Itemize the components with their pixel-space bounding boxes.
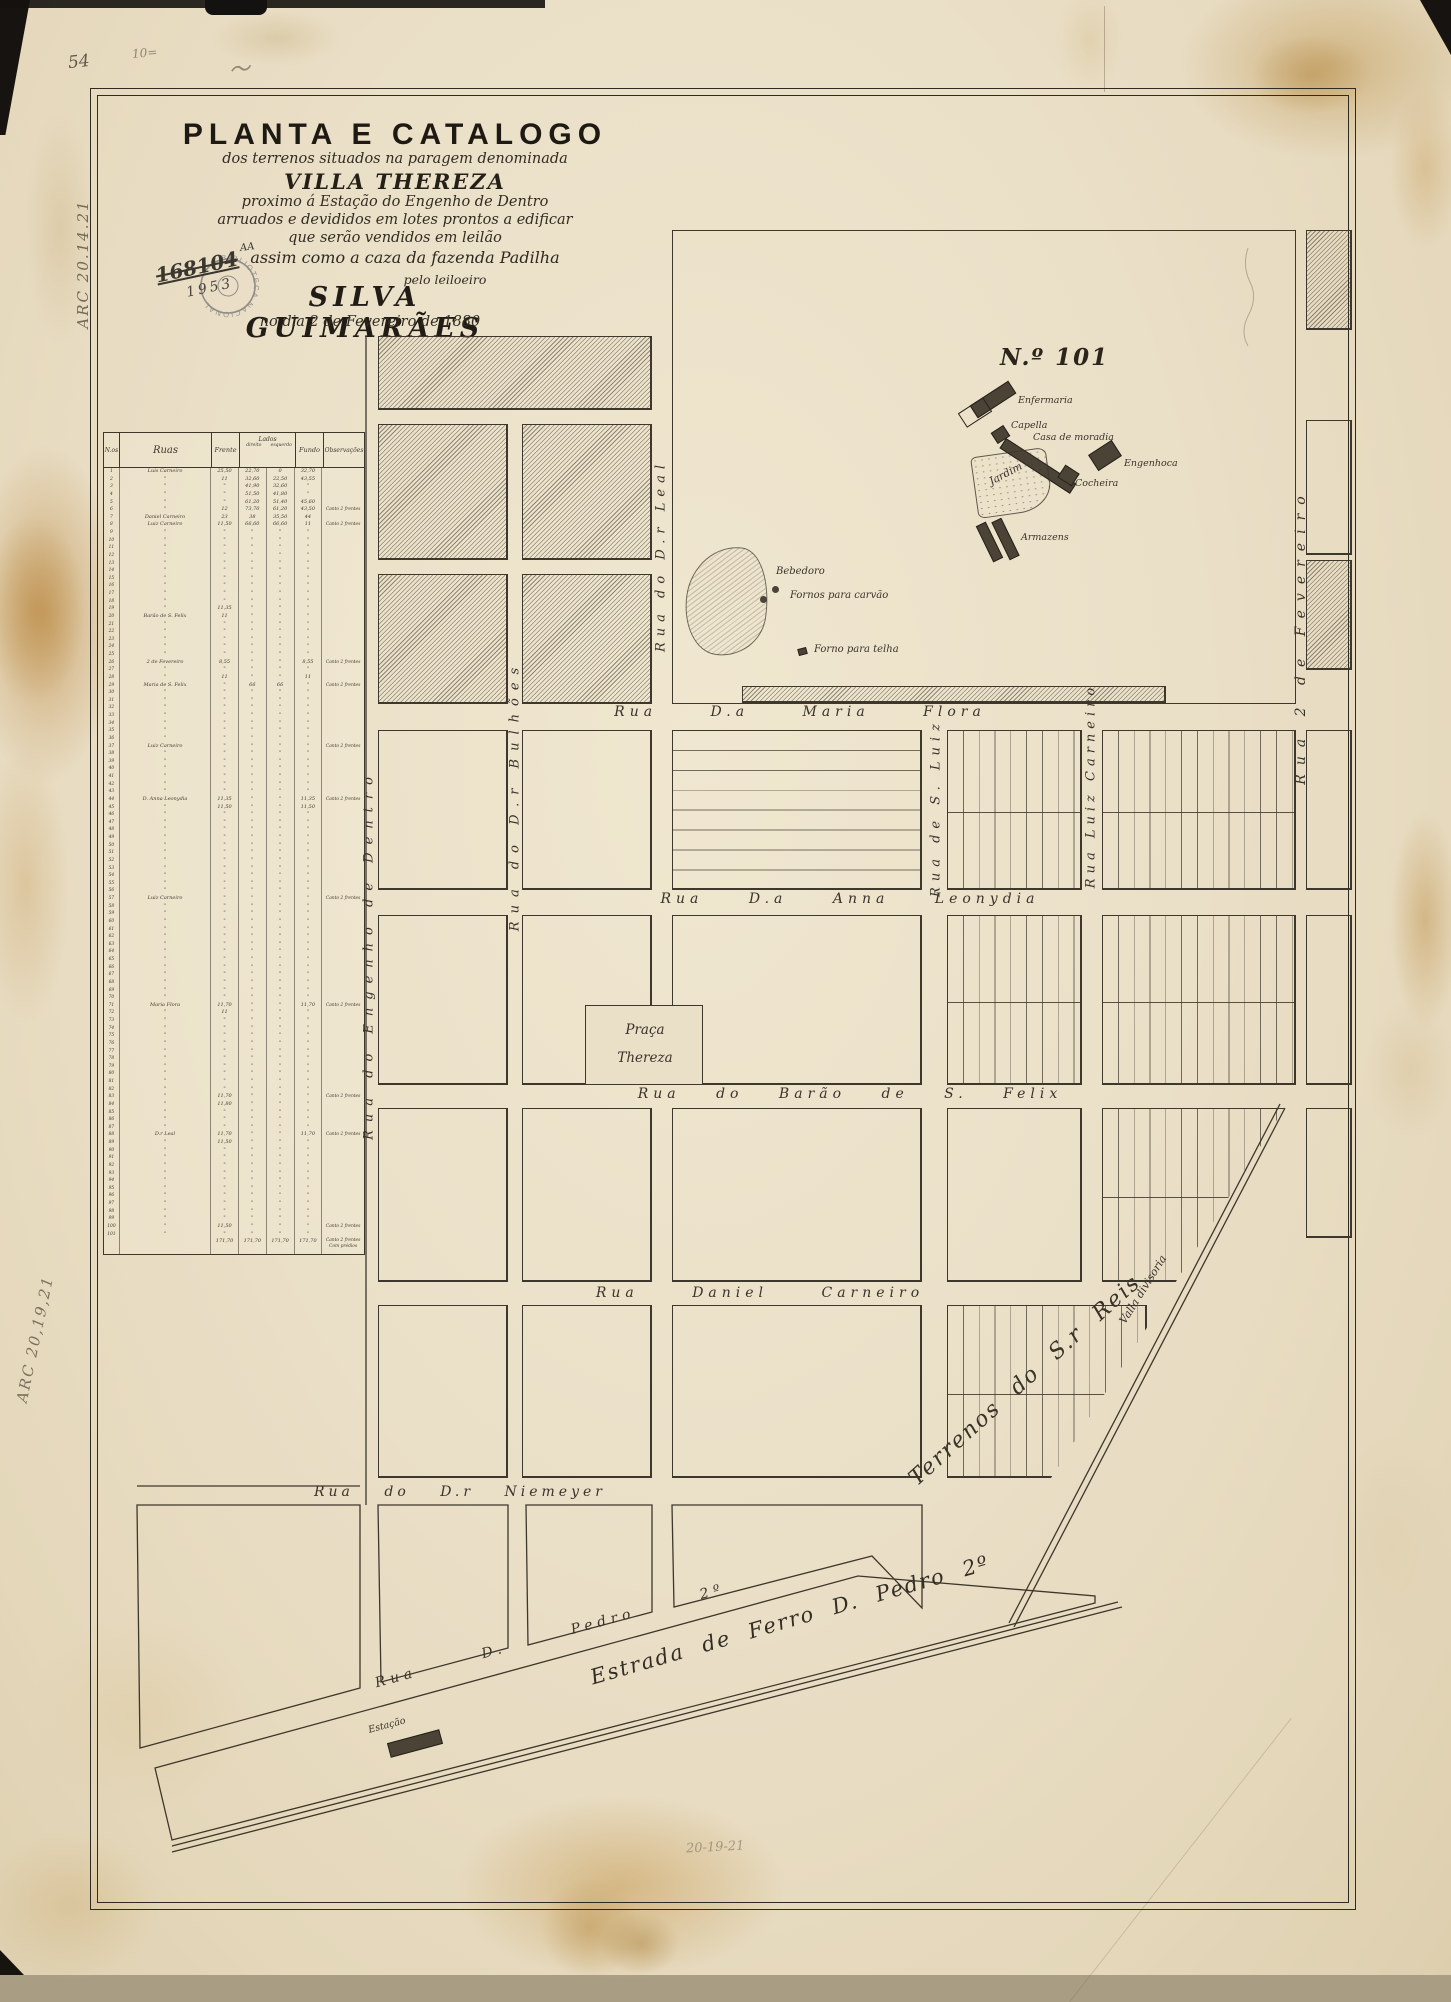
table-row: 15""""" [104, 575, 364, 583]
table-row: 78""""" [104, 1055, 364, 1063]
table-row: 76""""" [104, 1040, 364, 1048]
table-row: 37Luiz Carneiro""""Canto 2 frentes [104, 743, 364, 751]
table-row: 70""""" [104, 994, 364, 1002]
table-row: 31""""" [104, 697, 364, 705]
table-row: 91""""" [104, 1154, 364, 1162]
map-block-hatched [378, 574, 508, 704]
table-row: 16""""" [104, 582, 364, 590]
table-row: 45"11,50""11,50 [104, 804, 364, 812]
table-row: 97""""" [104, 1200, 364, 1208]
table-row: 51""""" [104, 849, 364, 857]
map-block [522, 730, 652, 890]
map-title: PLANTA E CATALOGO [165, 118, 625, 152]
stain [1055, 0, 1125, 95]
table-row: 95""""" [104, 1185, 364, 1193]
table-row: 96""""" [104, 1192, 364, 1200]
table-row: 100"11,50"""Canto 2 frentes [104, 1223, 364, 1231]
table-row: 55""""" [104, 880, 364, 888]
margin-block [1306, 420, 1352, 555]
praca-label-1: Praça [600, 1022, 690, 1038]
map-block-lots [947, 730, 1082, 890]
stain [0, 745, 70, 1025]
table-row: 69""""" [104, 987, 364, 995]
forno-carvao-dot [760, 596, 767, 603]
hatched-strip [742, 686, 1166, 703]
map-block [378, 730, 508, 890]
table-row: 50""""" [104, 842, 364, 850]
col-header-ruas: Ruas [120, 433, 212, 467]
table-row: 63""""" [104, 941, 364, 949]
cocheira-label: Cocheira [1075, 478, 1118, 489]
map-block [672, 1305, 922, 1478]
table-row: 86""""" [104, 1116, 364, 1124]
table-row: 10""""" [104, 537, 364, 545]
table-header: N.os Ruas Frente Lados direito esquerdo … [104, 433, 364, 468]
page-number-annotation: 54 [67, 51, 91, 73]
table-row: 19"11,35""" [104, 605, 364, 613]
map-block-lots [947, 915, 1082, 1085]
table-row: 17""""" [104, 590, 364, 598]
margin-block [1306, 915, 1352, 1085]
table-row: 9""""" [104, 529, 364, 537]
street-label-engenho-dentro: Rua do Engenho de Dentro [362, 655, 377, 1255]
estate-101-label: N.º 101 [1000, 344, 1109, 371]
table-row: 24""""" [104, 643, 364, 651]
table-row: 74""""" [104, 1025, 364, 1033]
table-row: 38""""" [104, 750, 364, 758]
stain [600, 1912, 680, 1975]
map-block [672, 915, 922, 1085]
table-row: 47""""" [104, 819, 364, 827]
table-row: 88D.r Leal11,70""11,70Canto 2 frentes [104, 1131, 364, 1139]
pencil-squiggle: 〜 [225, 50, 252, 85]
table-row: 80""""" [104, 1070, 364, 1078]
table-row: 12""""" [104, 552, 364, 560]
scanned-paper: 54 10= 〜 ARC 20.14.21 ARC 20,19,21 20-19… [0, 0, 1451, 1975]
table-row: 42""""" [104, 781, 364, 789]
table-row: 83"11,70"""Canto 2 frentes [104, 1093, 364, 1101]
fornos-carvao-label: Fornos para carvão [790, 590, 888, 601]
casa-moradia-label: Casa de moradia [1033, 432, 1114, 443]
table-row: 36""""" [104, 735, 364, 743]
table-row: 23""""" [104, 636, 364, 644]
map-block [378, 915, 508, 1085]
table-row: 89"11,50""" [104, 1139, 364, 1147]
map-block-hatched [522, 574, 652, 704]
table-row: 32""""" [104, 704, 364, 712]
street-label-barao-s-felix: Rua do Barão de S. Felix [420, 1086, 1280, 1102]
table-row: 66""""" [104, 964, 364, 972]
praca-label-2: Thereza [600, 1050, 690, 1066]
auctioneer-name: SILVA GUIMARÃES [200, 282, 530, 344]
street-label-fevereiro: Rua 2 de Fevereiro [1293, 401, 1309, 871]
table-row: 44D. Anna Leonydia11,35""11,35Canto 2 fr… [104, 796, 364, 804]
table-row: 99""""" [104, 1215, 364, 1223]
table-row: 1Luis Carneiro25,5022,70032,70 [104, 468, 364, 476]
table-row: 64""""" [104, 948, 364, 956]
table-row: 262 de Fevereiro8,55""8,55Canto 2 frente… [104, 659, 364, 667]
map-block [672, 1108, 922, 1282]
table-row: 58""""" [104, 903, 364, 911]
table-row: 25""""" [104, 651, 364, 659]
map-block-lots [1102, 730, 1296, 890]
table-row: 33""""" [104, 712, 364, 720]
stain [0, 515, 85, 705]
table-row: 6"1273,7061,2043,50Canto 2 frentes [104, 506, 364, 514]
map-subtitle-4: que serão vendidos em leilão [230, 230, 560, 246]
table-row: 77""""" [104, 1048, 364, 1056]
margin-block-hatched [1306, 230, 1352, 330]
col-header-numero: N.os [104, 433, 120, 467]
table-row: 85""""" [104, 1109, 364, 1117]
street-label-s-luiz: Rua de S. Luiz [929, 658, 944, 958]
table-row: 53""""" [104, 865, 364, 873]
lados-direito-label: direito [240, 443, 268, 448]
table-row: 2"1132,6022,5043,55 [104, 476, 364, 484]
map-block [947, 1108, 1082, 1282]
table-row: 98""""" [104, 1208, 364, 1216]
scan-edge [0, 0, 30, 135]
table-row: 90""""" [104, 1147, 364, 1155]
map-subtitle-3: arruados e devididos em lotes prontos a … [170, 212, 620, 228]
table-row: 21""""" [104, 621, 364, 629]
table-body: 1Luis Carneiro25,5022,70032,702"1132,602… [104, 468, 364, 1254]
scan-edge [0, 0, 545, 8]
map-block-lots [1102, 915, 1296, 1085]
table-row: 34""""" [104, 720, 364, 728]
street-label-leal: Rua do D.r Leal [654, 366, 669, 746]
col-header-fundo: Fundo [296, 433, 324, 467]
praca-thereza-square [585, 1005, 703, 1085]
table-row: 92""""" [104, 1162, 364, 1170]
table-row: 18""""" [104, 598, 364, 606]
table-row: 35""""" [104, 727, 364, 735]
table-row: 61""""" [104, 926, 364, 934]
table-row: 7Daniel Carneiro233835,5044 [104, 514, 364, 522]
table-row: 93""""" [104, 1170, 364, 1178]
capella-label: Capella [1011, 420, 1047, 431]
lot-catalog-table: N.os Ruas Frente Lados direito esquerdo … [103, 432, 365, 1255]
table-row: 54""""" [104, 872, 364, 880]
map-block-hatched [522, 424, 652, 560]
map-block-lots [672, 730, 922, 890]
col-header-lados: Lados direito esquerdo [240, 433, 296, 467]
table-row: 46""""" [104, 811, 364, 819]
pencil-mark: 10= [131, 45, 157, 61]
table-row: 67""""" [104, 971, 364, 979]
engenhoca-label: Engenhoca [1124, 458, 1178, 469]
stain [1390, 810, 1451, 1030]
crease [1104, 6, 1105, 92]
map-block [378, 1108, 508, 1282]
margin-block [1306, 1108, 1352, 1238]
table-row: 20Barão de S. Felix11""" [104, 613, 364, 621]
table-row: 101""""" [104, 1231, 364, 1239]
map-block [378, 1305, 508, 1478]
map-subtitle-villa: VILLA THEREZA [230, 169, 560, 194]
table-row: 73""""" [104, 1017, 364, 1025]
table-row: 39""""" [104, 758, 364, 766]
map-block-hatched [378, 424, 508, 560]
col-header-observacoes: Observações [324, 433, 364, 467]
table-row: 79""""" [104, 1063, 364, 1071]
table-row: 52""""" [104, 857, 364, 865]
table-row: 30""""" [104, 689, 364, 697]
table-row: 84"11,80""" [104, 1101, 364, 1109]
table-row: 40""""" [104, 765, 364, 773]
table-row: 4""51,5041,80" [104, 491, 364, 499]
map-subtitle-2: proximo á Estação do Engenho de Dentro [200, 194, 590, 210]
forno-telha-label: Forno para telha [814, 644, 899, 655]
margin-block [1306, 730, 1352, 890]
street-label-maria-flora: Rua D.a Maria Flora [420, 704, 1180, 720]
table-row: 65""""" [104, 956, 364, 964]
street-label-luiz-carneiro: Rua Luiz Carneiro [1084, 616, 1099, 956]
lados-label: Lados [258, 436, 276, 443]
lados-esquerdo-label: esquerdo [268, 443, 296, 448]
table-row: 56""""" [104, 887, 364, 895]
table-row: 14""""" [104, 567, 364, 575]
table-row: 72"11""" [104, 1009, 364, 1017]
col-header-frente: Frente [212, 433, 240, 467]
table-row: 11""""" [104, 544, 364, 552]
map-subtitle-1: dos terrenos situados na paragem denomin… [180, 151, 610, 167]
stain [1365, 1000, 1451, 1140]
stain [1390, 85, 1451, 250]
enfermaria-label: Enfermaria [1018, 395, 1073, 406]
table-row: 22""""" [104, 628, 364, 636]
call-number-bottom: ARC 20,19,21 [12, 1269, 59, 1410]
table-row: 81""""" [104, 1078, 364, 1086]
table-row: 29Maria de S. Felix"6666"Canto 2 frentes [104, 682, 364, 690]
table-row: 94""""" [104, 1177, 364, 1185]
table-row: 28"11""11 [104, 674, 364, 682]
map-block-hatched [378, 336, 652, 410]
map-block [522, 1108, 652, 1282]
map-subtitle-5: assim como a caza da fazenda Padilha [190, 248, 620, 267]
table-row: 171,70171,70171,70171,70Canto 2 frentes … [104, 1238, 364, 1254]
table-row: 62""""" [104, 933, 364, 941]
table-row: 87""""" [104, 1124, 364, 1132]
scan-edge [205, 0, 267, 15]
scan-edge [1420, 0, 1451, 55]
table-row: 41""""" [104, 773, 364, 781]
table-row: 8Luiz Carneiro11,5066,6066,6011Canto 2 f… [104, 521, 364, 529]
table-row: 5""61,2051,4045,60 [104, 499, 364, 507]
map-block [522, 1305, 652, 1478]
table-row: 43""""" [104, 788, 364, 796]
armazens-label: Armazens [1021, 532, 1069, 543]
table-row: 57Luiz Carneiro""""Canto 2 frentes [104, 895, 364, 903]
street-label-anna-leonydia: Rua D.a Anna Leonydia [420, 891, 1280, 907]
forno-carvao-dot [772, 586, 779, 593]
street-label-bulhoes: Rua do D.r Bulhões [508, 581, 523, 1011]
auction-date: no dia 2 de Fevereiro de 1880 [225, 314, 515, 330]
bebedoro-label: Bebedoro [776, 566, 825, 577]
street-label-daniel-carneiro: Rua Daniel Carneiro [420, 1285, 1100, 1301]
scan-edge [0, 1950, 24, 1975]
table-row: 59""""" [104, 910, 364, 918]
table-row: 75""""" [104, 1032, 364, 1040]
table-row: 13""""" [104, 560, 364, 568]
street-label-niemeyer: Rua do D.r Niemeyer [225, 1484, 695, 1500]
table-row: 60""""" [104, 918, 364, 926]
table-row: 3""41,9032,60" [104, 483, 364, 491]
table-row: 71Maria Flora11,70""11,70Canto 2 frentes [104, 1002, 364, 1010]
margin-block-hatched [1306, 560, 1352, 670]
table-row: 49""""" [104, 834, 364, 842]
table-row: 68""""" [104, 979, 364, 987]
table-row: 82""""" [104, 1086, 364, 1094]
table-row: 27""""" [104, 666, 364, 674]
table-row: 48""""" [104, 826, 364, 834]
